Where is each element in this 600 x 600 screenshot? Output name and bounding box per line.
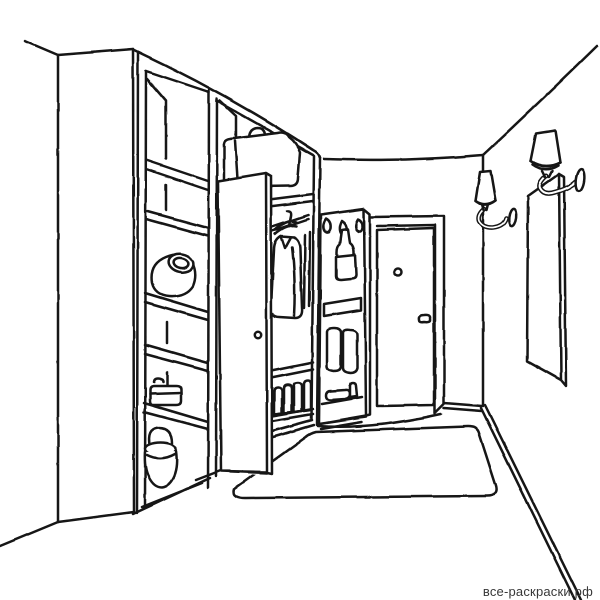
svg-text:все-раскраски.рф: все-раскраски.рф	[483, 584, 593, 599]
